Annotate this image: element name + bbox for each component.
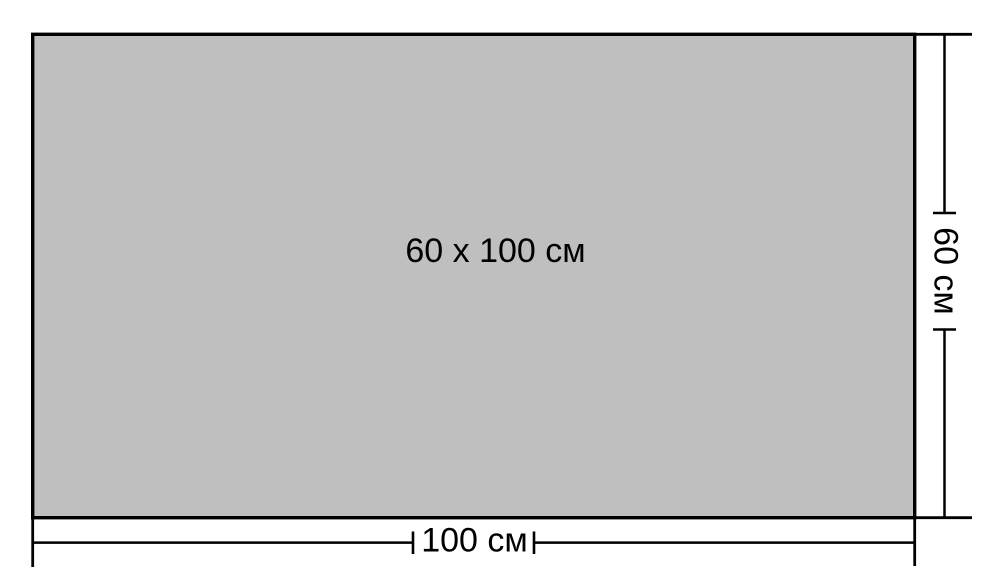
svg-text:60 x 100 см: 60 x 100 см (405, 232, 585, 270)
svg-text:60 см: 60 см (927, 227, 965, 315)
svg-text:100 см: 100 см (421, 522, 528, 560)
